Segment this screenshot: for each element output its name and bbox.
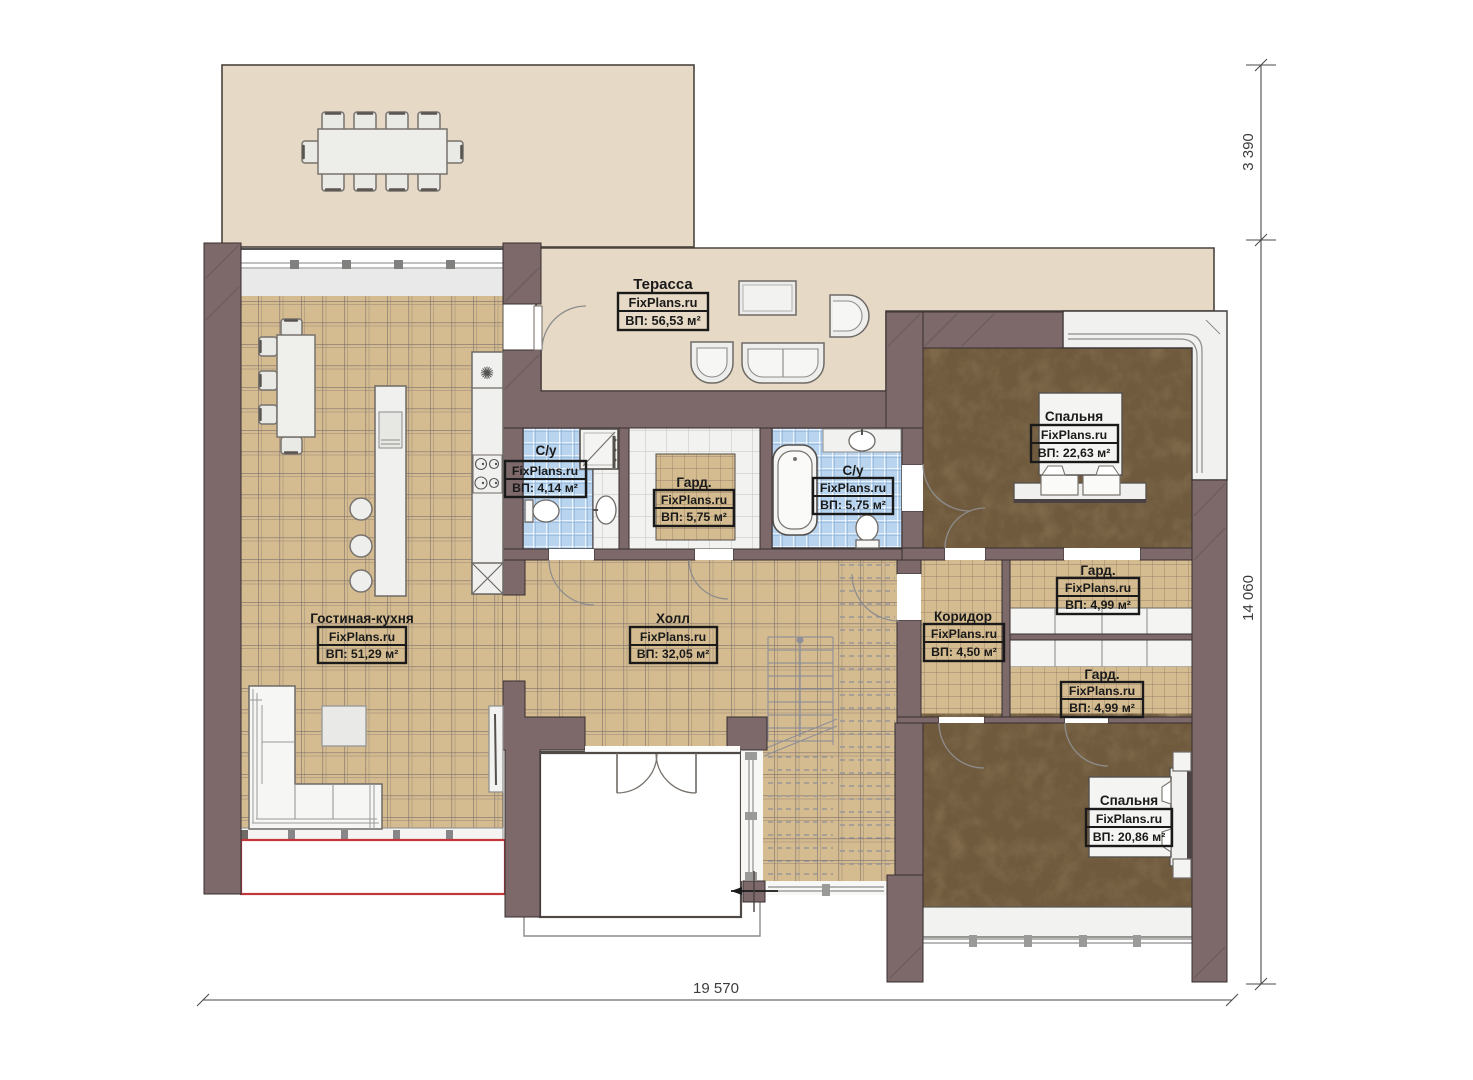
svg-text:FixPlans.ru: FixPlans.ru — [629, 295, 698, 310]
svg-text:ВП: 4,99 м²: ВП: 4,99 м² — [1065, 598, 1131, 612]
svg-text:С/у: С/у — [842, 463, 864, 478]
svg-text:✺: ✺ — [480, 364, 494, 383]
svg-text:Холл: Холл — [656, 611, 690, 626]
svg-text:FixPlans.ru: FixPlans.ru — [1065, 581, 1131, 595]
svg-text:FixPlans.ru: FixPlans.ru — [1096, 812, 1162, 826]
svg-text:FixPlans.ru: FixPlans.ru — [1041, 428, 1107, 442]
svg-text:14 060: 14 060 — [1240, 575, 1257, 621]
svg-text:Гард.: Гард. — [1080, 563, 1115, 578]
svg-text:Спальня: Спальня — [1045, 409, 1103, 424]
svg-text:Терасса: Терасса — [633, 276, 693, 293]
svg-text:Гостиная-кухня: Гостиная-кухня — [310, 611, 413, 626]
svg-text:ВП: 56,53 м²: ВП: 56,53 м² — [625, 313, 701, 328]
svg-text:FixPlans.ru: FixPlans.ru — [931, 627, 997, 641]
svg-text:Спальня: Спальня — [1100, 793, 1158, 808]
svg-text:19 570: 19 570 — [693, 980, 739, 997]
svg-text:Гард.: Гард. — [676, 475, 711, 490]
svg-text:ВП: 4,50 м²: ВП: 4,50 м² — [931, 645, 997, 659]
svg-text:Гард.: Гард. — [1084, 667, 1119, 682]
svg-text:ВП: 51,29 м²: ВП: 51,29 м² — [326, 647, 399, 661]
svg-text:ВП: 22,63 м²: ВП: 22,63 м² — [1038, 446, 1111, 460]
svg-text:ВП: 5,75 м²: ВП: 5,75 м² — [661, 510, 727, 524]
svg-text:FixPlans.ru: FixPlans.ru — [661, 493, 727, 507]
svg-text:С/у: С/у — [535, 443, 557, 458]
svg-text:Коридор: Коридор — [934, 609, 992, 624]
svg-text:FixPlans.ru: FixPlans.ru — [1069, 684, 1135, 698]
svg-text:FixPlans.ru: FixPlans.ru — [329, 630, 395, 644]
svg-text:FixPlans.ru: FixPlans.ru — [820, 481, 886, 495]
svg-text:ВП: 32,05 м²: ВП: 32,05 м² — [637, 647, 710, 661]
svg-text:ВП: 4,99 м²: ВП: 4,99 м² — [1069, 701, 1135, 715]
svg-text:ВП: 5,75 м²: ВП: 5,75 м² — [820, 498, 886, 512]
svg-text:3 390: 3 390 — [1240, 133, 1257, 171]
svg-text:FixPlans.ru: FixPlans.ru — [640, 630, 706, 644]
svg-text:ВП: 20,86 м²: ВП: 20,86 м² — [1093, 830, 1166, 844]
svg-text:FixPlans.ru: FixPlans.ru — [512, 464, 578, 478]
svg-text:ВП: 4,14 м²: ВП: 4,14 м² — [512, 481, 578, 495]
